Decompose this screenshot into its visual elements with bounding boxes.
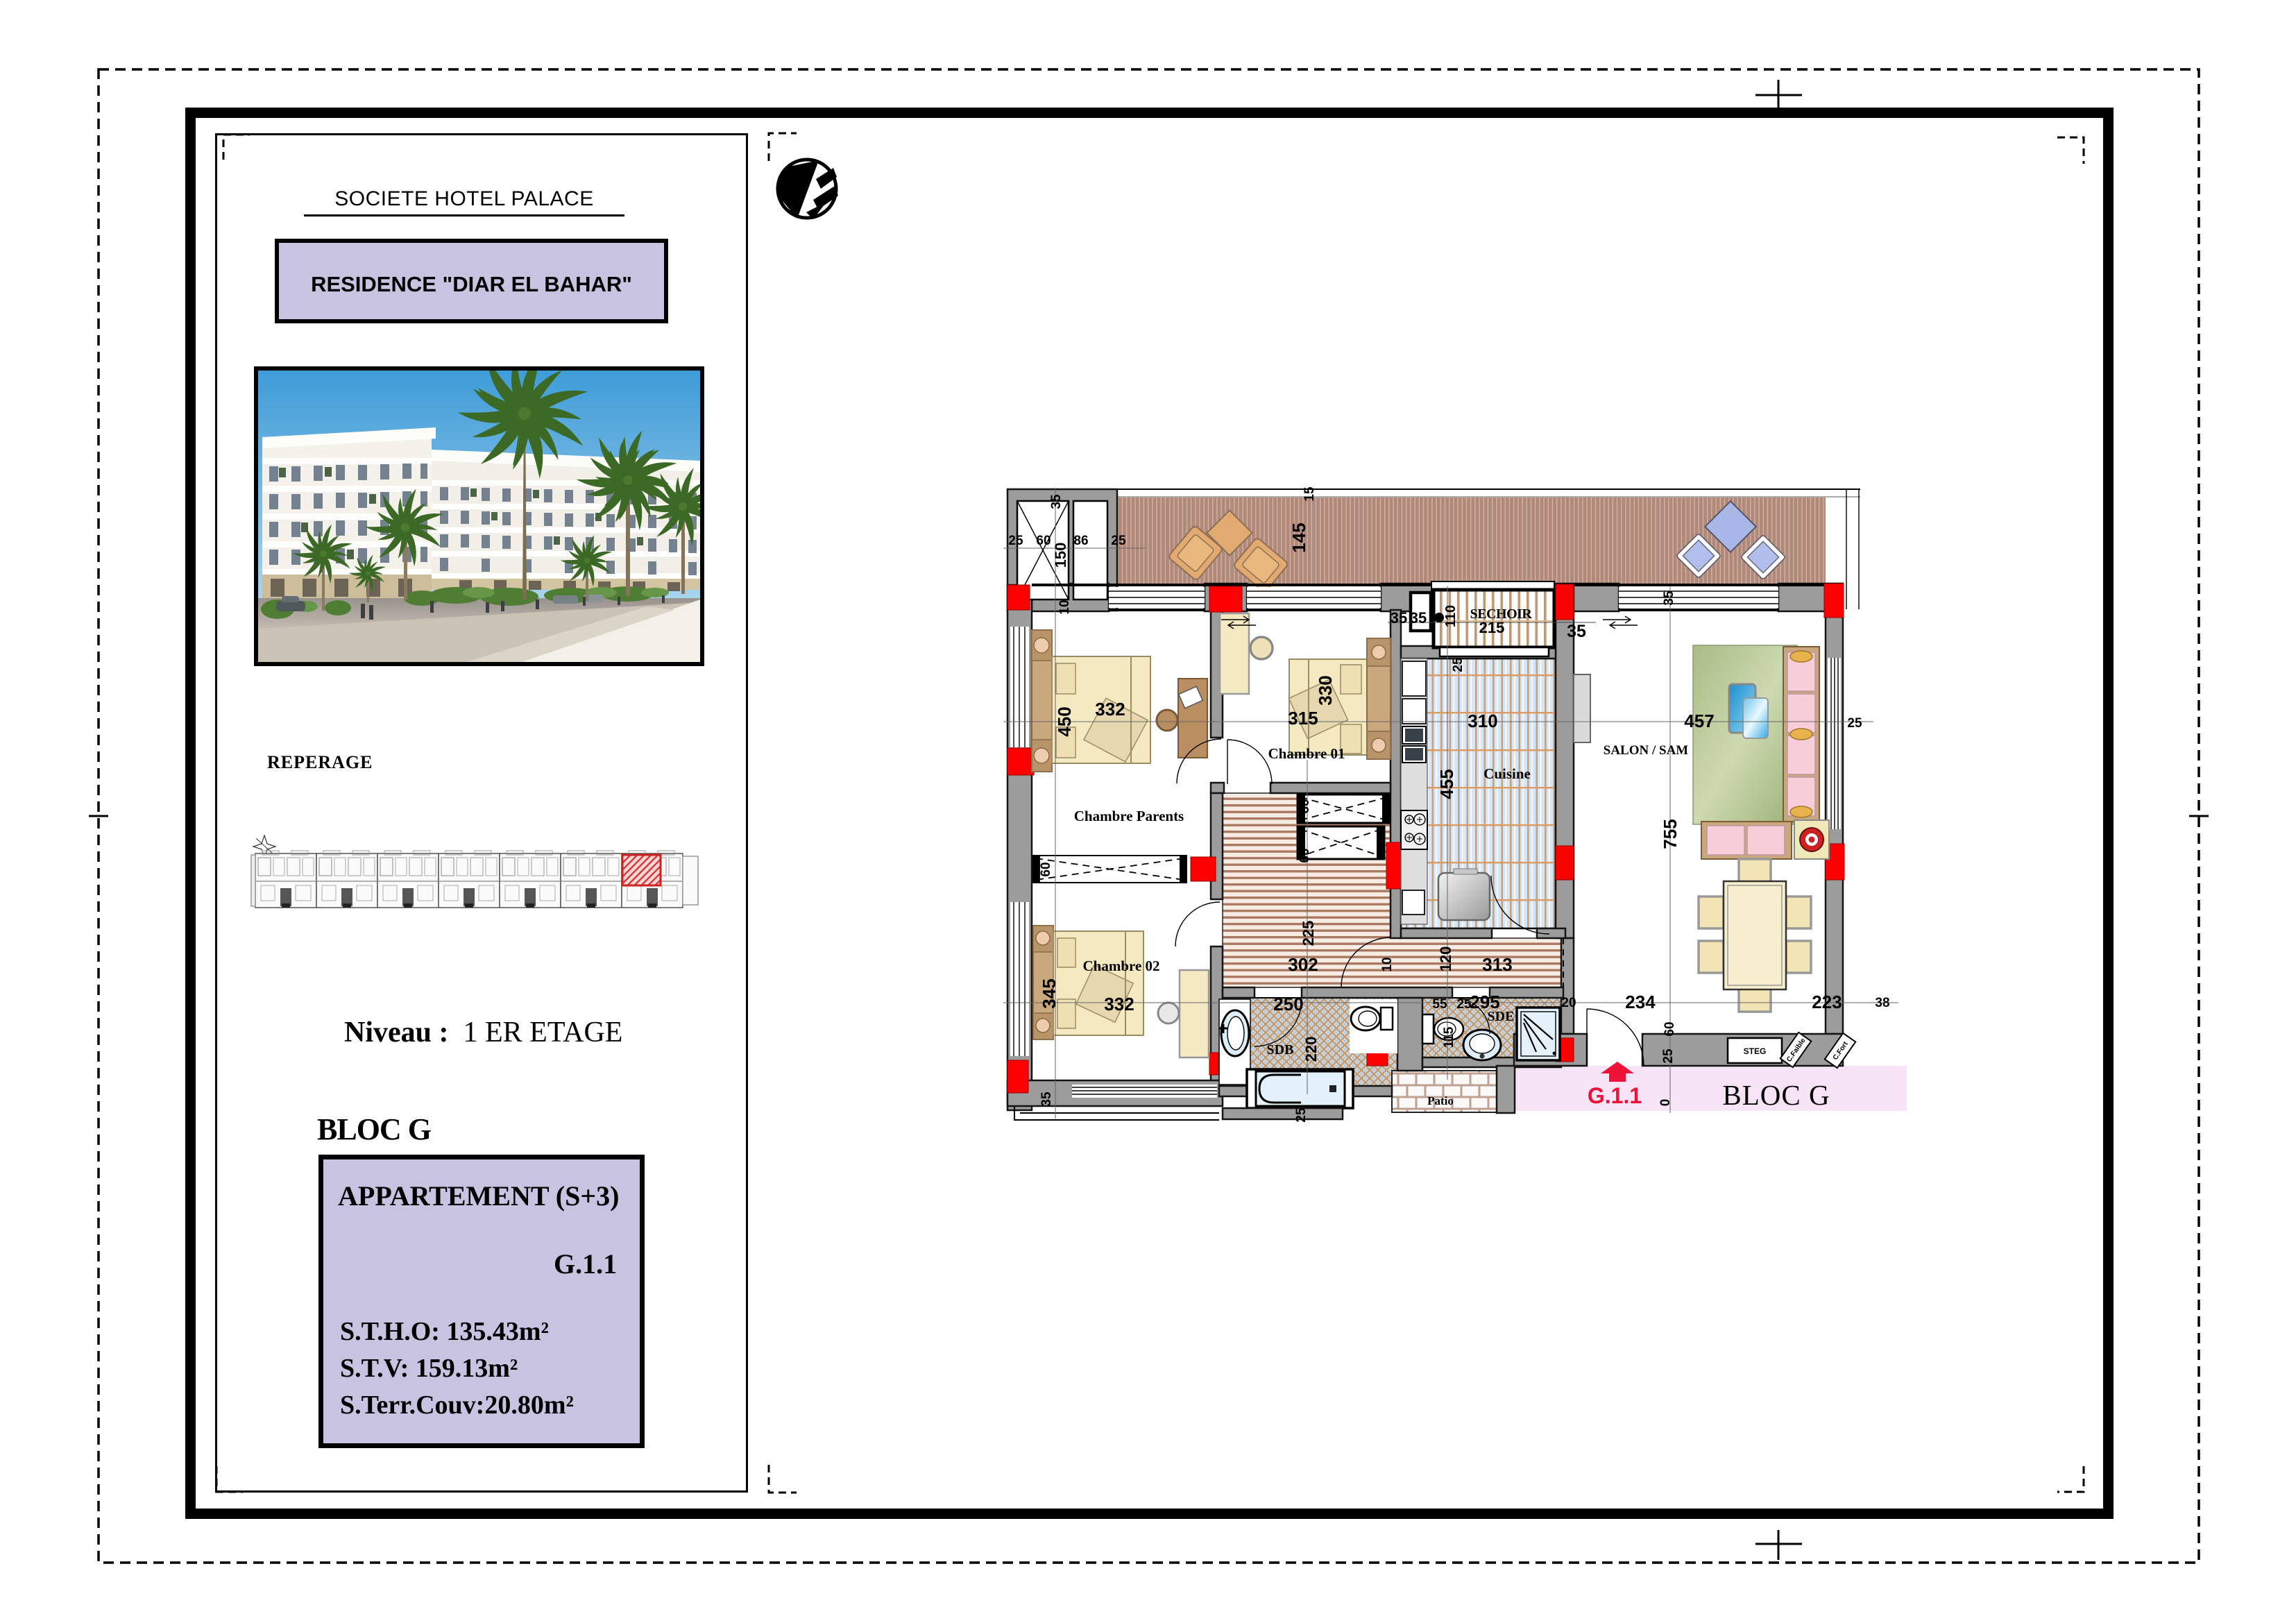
svg-text:10: 10: [1057, 600, 1072, 614]
svg-text:BLOC G: BLOC G: [1722, 1079, 1830, 1111]
svg-text:25: 25: [1451, 657, 1465, 672]
svg-text:313: 313: [1482, 954, 1512, 975]
svg-text:25: 25: [1847, 716, 1862, 731]
svg-text:Patio: Patio: [1427, 1094, 1454, 1107]
svg-text:35: 35: [1049, 494, 1064, 509]
svg-text:455: 455: [1436, 769, 1457, 799]
svg-text:223: 223: [1812, 992, 1842, 1012]
svg-text:330: 330: [1315, 675, 1336, 705]
svg-text:Cuisine: Cuisine: [1483, 765, 1531, 782]
svg-text:120: 120: [1437, 946, 1454, 972]
svg-text:755: 755: [1660, 819, 1681, 849]
svg-text:STEG: STEG: [1744, 1046, 1767, 1056]
svg-text:332: 332: [1104, 994, 1134, 1014]
svg-text:35: 35: [1391, 609, 1407, 627]
svg-text:60: 60: [1039, 862, 1053, 876]
svg-text:250: 250: [1273, 994, 1303, 1014]
svg-text:35: 35: [1039, 1091, 1054, 1107]
svg-text:0: 0: [1658, 1099, 1673, 1107]
svg-text:302: 302: [1288, 954, 1318, 975]
svg-text:25: 25: [1008, 534, 1023, 548]
svg-text:25: 25: [1661, 1048, 1676, 1064]
svg-text:35: 35: [1662, 590, 1676, 606]
svg-text:225: 225: [1300, 921, 1317, 946]
svg-text:38: 38: [1875, 996, 1889, 1010]
svg-text:234: 234: [1625, 992, 1656, 1012]
svg-text:G.1.1: G.1.1: [1588, 1083, 1642, 1108]
svg-text:60: 60: [1298, 848, 1312, 863]
svg-text:145: 145: [1289, 522, 1309, 552]
svg-text:86: 86: [1073, 534, 1088, 548]
svg-text:115: 115: [1442, 1026, 1456, 1048]
svg-text:35: 35: [1410, 609, 1427, 627]
svg-text:Chambre 01: Chambre 01: [1268, 745, 1345, 762]
svg-text:SDB: SDB: [1267, 1042, 1294, 1057]
svg-text:Chambre 02: Chambre 02: [1082, 958, 1159, 974]
svg-text:25: 25: [1294, 1107, 1309, 1123]
svg-text:220: 220: [1302, 1037, 1320, 1062]
svg-text:SECHOIR: SECHOIR: [1470, 606, 1533, 622]
svg-text:SALON / SAM: SALON / SAM: [1604, 743, 1689, 758]
svg-text:60: 60: [1298, 799, 1312, 813]
svg-text:150: 150: [1052, 543, 1069, 568]
svg-text:25: 25: [1111, 534, 1126, 548]
svg-text:SDE: SDE: [1488, 1009, 1515, 1024]
svg-text:450: 450: [1054, 706, 1075, 736]
svg-text:60: 60: [1036, 534, 1051, 548]
svg-text:35: 35: [1567, 622, 1586, 641]
svg-text:15: 15: [1302, 486, 1317, 502]
svg-text:310: 310: [1468, 711, 1497, 731]
svg-text:457: 457: [1684, 711, 1714, 731]
svg-text:110: 110: [1443, 605, 1459, 627]
svg-text:345: 345: [1039, 978, 1060, 1008]
svg-text:332: 332: [1095, 699, 1125, 720]
svg-text:20: 20: [1561, 996, 1576, 1010]
svg-text:10: 10: [1380, 957, 1395, 971]
svg-text:Chambre Parents: Chambre Parents: [1074, 808, 1184, 824]
svg-text:60: 60: [1663, 1021, 1677, 1036]
svg-text:315: 315: [1288, 708, 1318, 729]
svg-text:55: 55: [1432, 997, 1447, 1012]
